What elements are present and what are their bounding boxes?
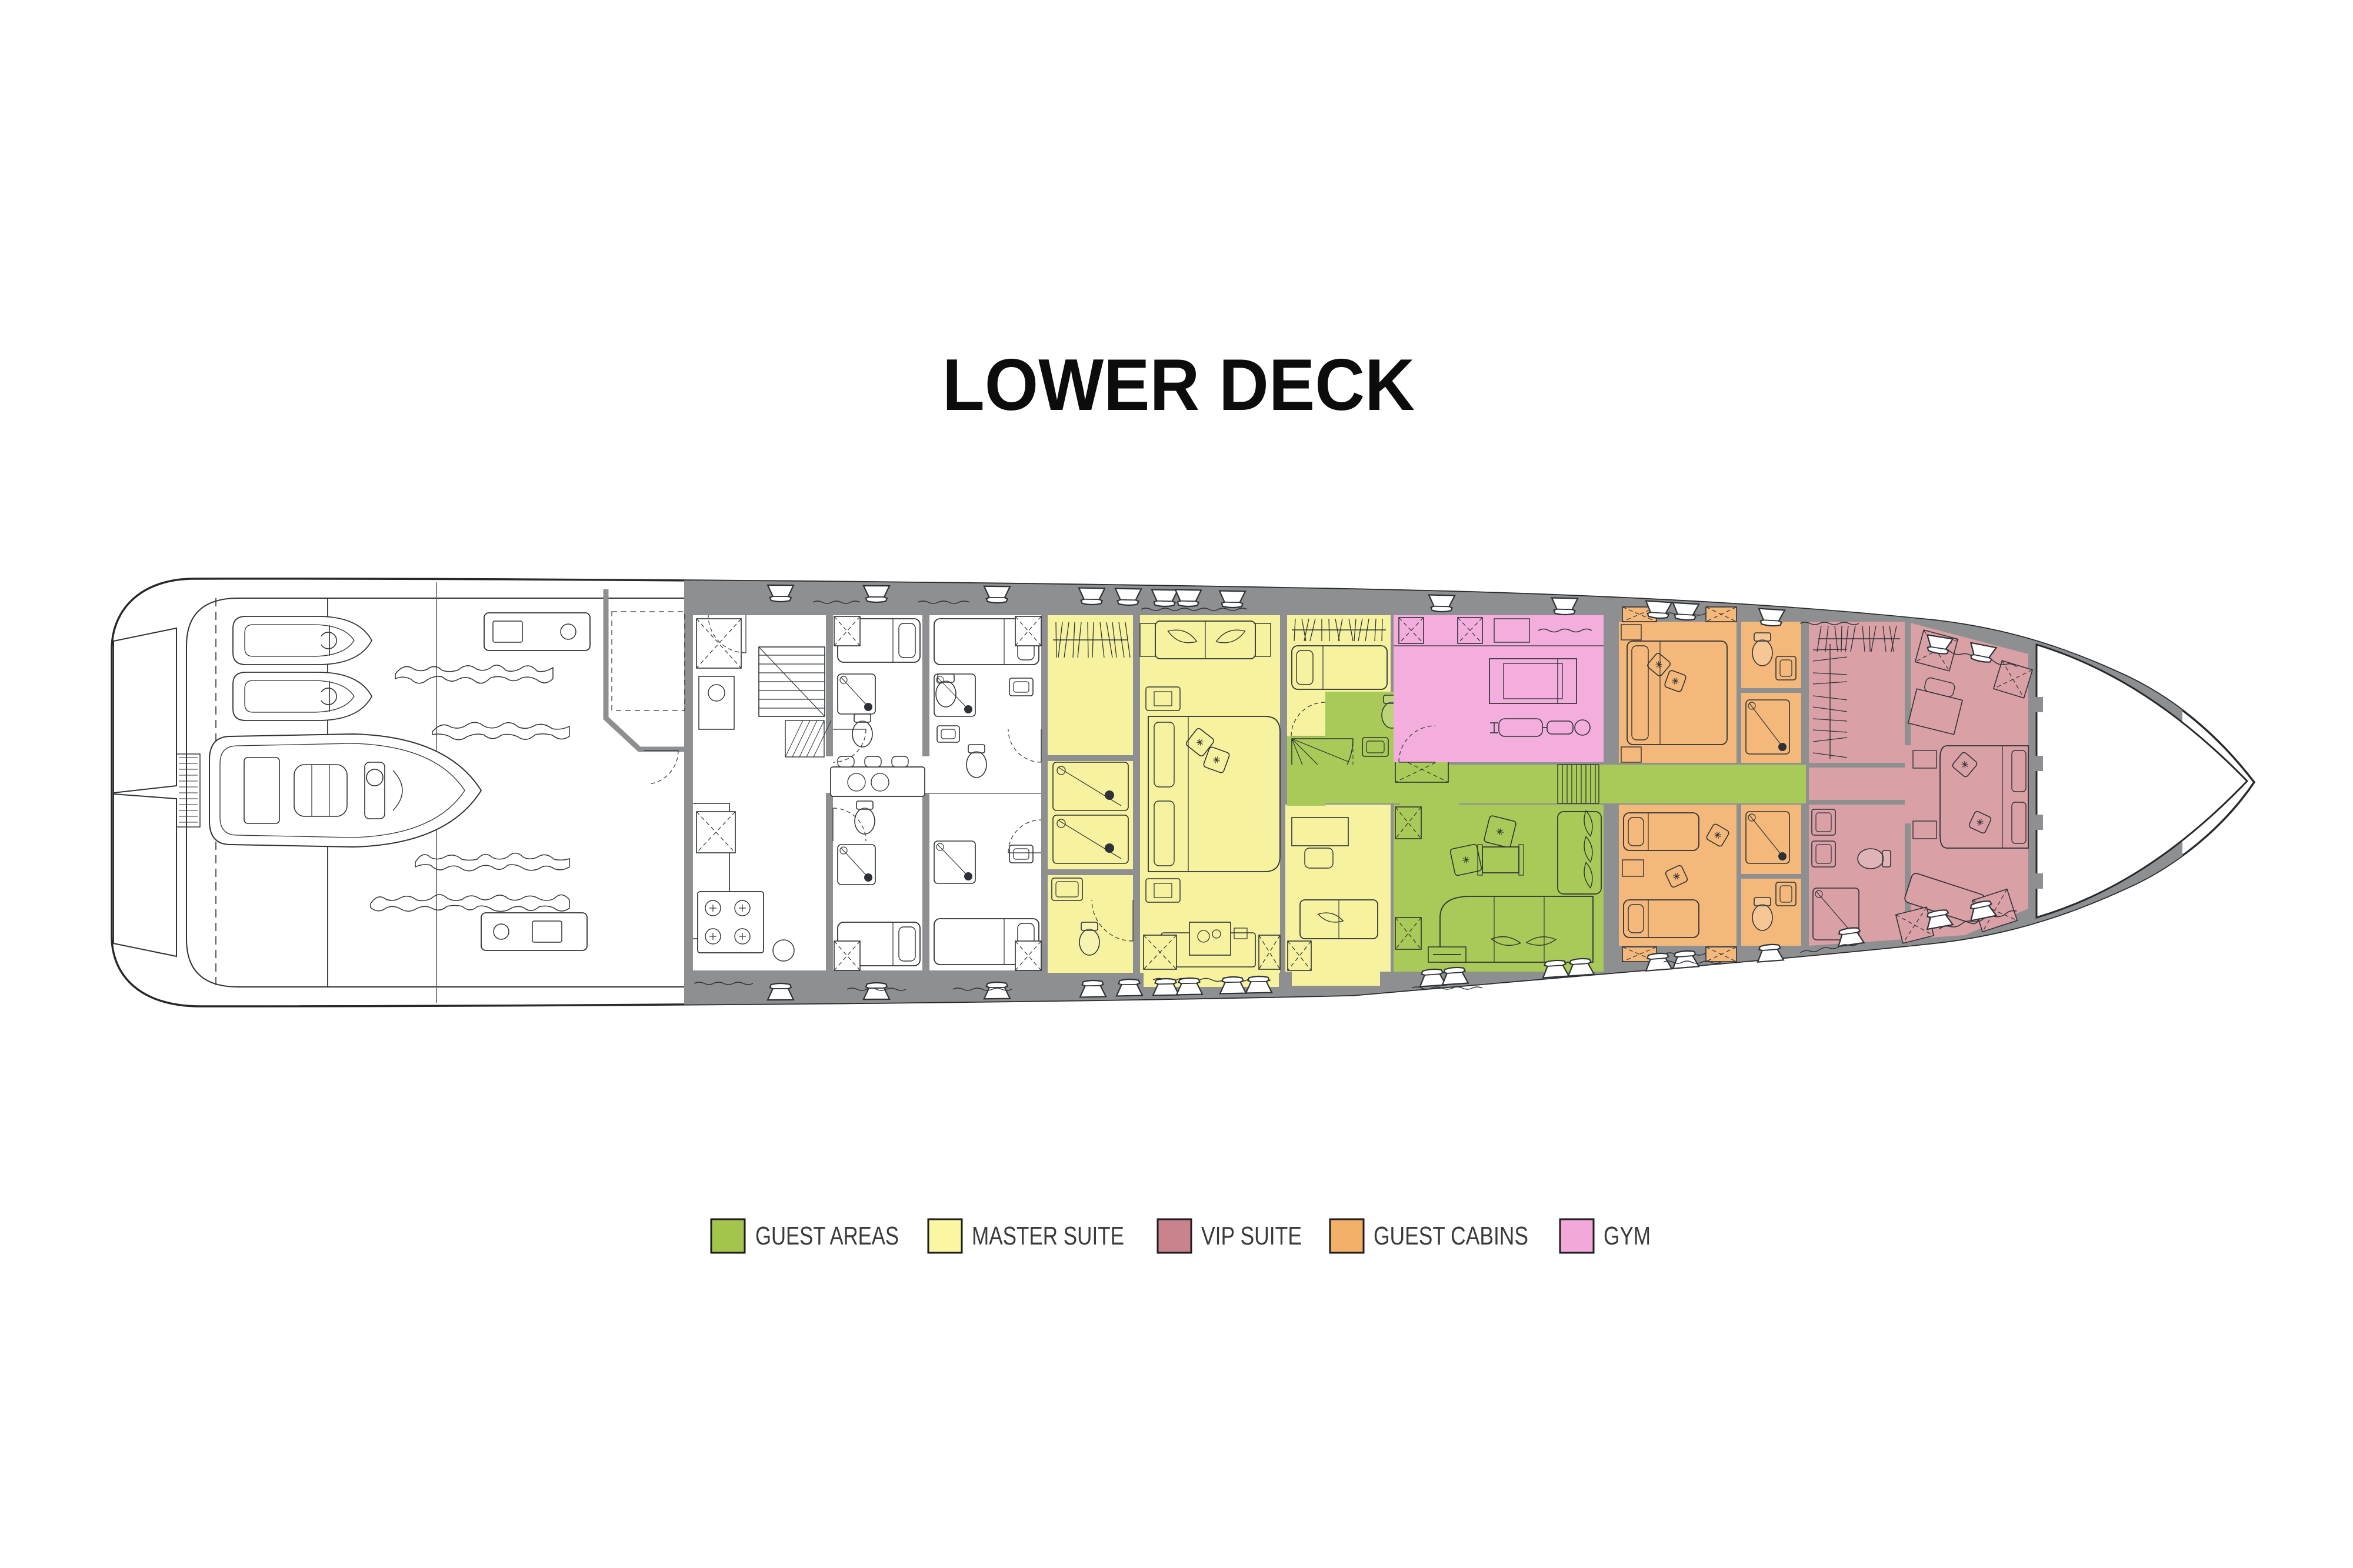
svg-text:GUEST CABINS: GUEST CABINS <box>1374 1222 1528 1250</box>
svg-text:GYM: GYM <box>1604 1222 1651 1250</box>
svg-text:GUEST AREAS: GUEST AREAS <box>755 1222 899 1250</box>
svg-text:VIP SUITE: VIP SUITE <box>1201 1222 1302 1250</box>
svg-text:LOWER DECK: LOWER DECK <box>942 345 1415 426</box>
svg-text:MASTER SUITE: MASTER SUITE <box>972 1222 1124 1250</box>
